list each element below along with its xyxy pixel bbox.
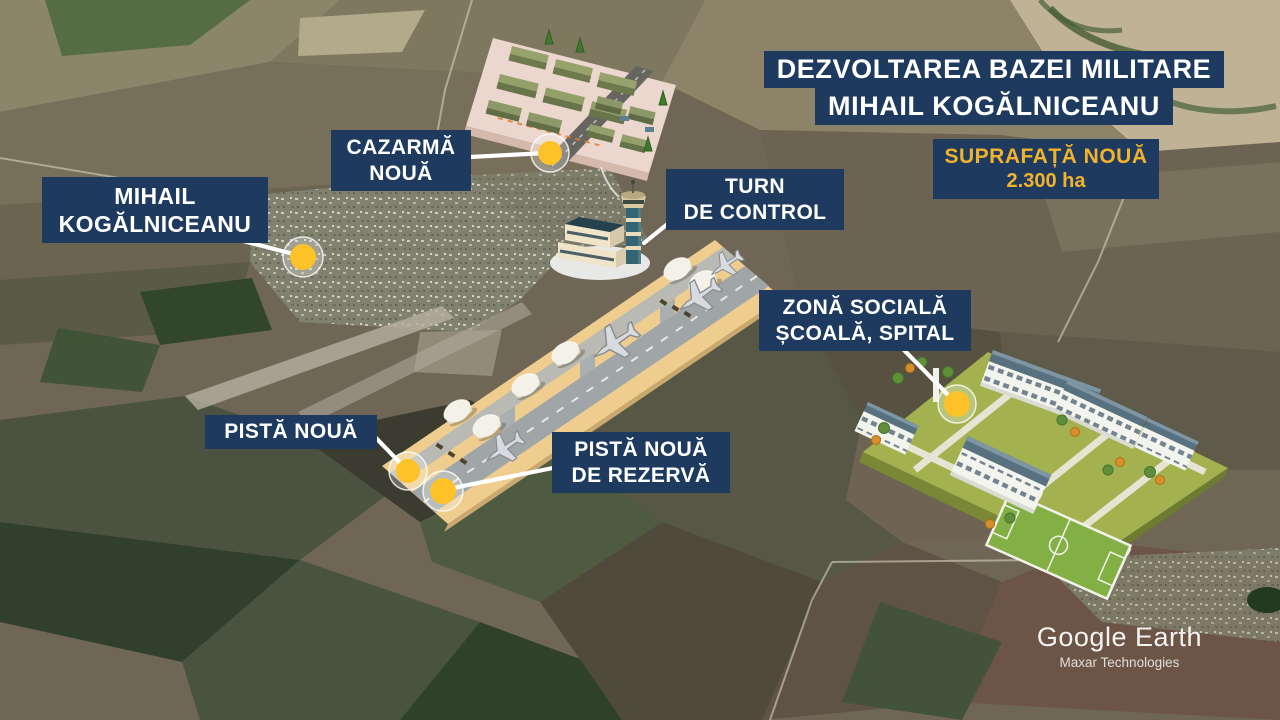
callout-line: DE REZERVĂ bbox=[560, 463, 722, 489]
marker-pista-noua bbox=[389, 452, 427, 490]
google-earth-watermark: Google Earth bbox=[1037, 622, 1202, 653]
callout-pista-noua: PISTĂ NOUĂ bbox=[205, 415, 377, 449]
callout-cazarma-noua: CAZARMĂ NOUĂ bbox=[331, 130, 471, 191]
marker-zona-sociala bbox=[938, 385, 976, 423]
callout-line: NOUĂ bbox=[339, 161, 463, 187]
headline: DEZVOLTAREA BAZEI MILITARE MIHAIL KOGĂLN… bbox=[755, 51, 1233, 125]
map-credit: Google Earth Maxar Technologies bbox=[1037, 622, 1202, 670]
headline-line2: MIHAIL KOGĂLNICEANU bbox=[815, 88, 1173, 125]
surface-area-label: SUPRAFAȚĂ NOUĂ bbox=[933, 144, 1159, 169]
callout-line: DE CONTROL bbox=[674, 200, 836, 226]
callout-line: CAZARMĂ bbox=[339, 135, 463, 161]
imagery-provider: Maxar Technologies bbox=[1037, 655, 1202, 670]
callout-line: MIHAIL bbox=[50, 182, 260, 210]
marker-mihail-kogalniceanu bbox=[283, 237, 323, 277]
callout-line: TURN bbox=[674, 174, 836, 200]
callout-turn-de-control: TURN DE CONTROL bbox=[666, 169, 844, 230]
broadcast-infographic: DEZVOLTAREA BAZEI MILITARE MIHAIL KOGĂLN… bbox=[0, 0, 1280, 720]
callout-line: KOGĂLNICEANU bbox=[50, 210, 260, 238]
surface-area-badge: SUPRAFAȚĂ NOUĂ 2.300 ha bbox=[933, 139, 1159, 199]
callout-line: PISTĂ NOUĂ bbox=[560, 437, 722, 463]
callout-line: ȘCOALĂ, SPITAL bbox=[767, 321, 963, 347]
callout-zona-sociala: ZONĂ SOCIALĂ ȘCOALĂ, SPITAL bbox=[759, 290, 971, 351]
marker-pista-rezerva bbox=[423, 471, 463, 511]
callout-mihail-kogalniceanu: MIHAIL KOGĂLNICEANU bbox=[42, 177, 268, 243]
surface-area-value: 2.300 ha bbox=[933, 169, 1159, 193]
callout-line: ZONĂ SOCIALĂ bbox=[767, 295, 963, 321]
callout-pista-noua-de-rezerva: PISTĂ NOUĂ DE REZERVĂ bbox=[552, 432, 730, 493]
headline-line1: DEZVOLTAREA BAZEI MILITARE bbox=[764, 51, 1225, 88]
marker-cazarma bbox=[531, 134, 569, 172]
callout-line: PISTĂ NOUĂ bbox=[213, 419, 369, 445]
